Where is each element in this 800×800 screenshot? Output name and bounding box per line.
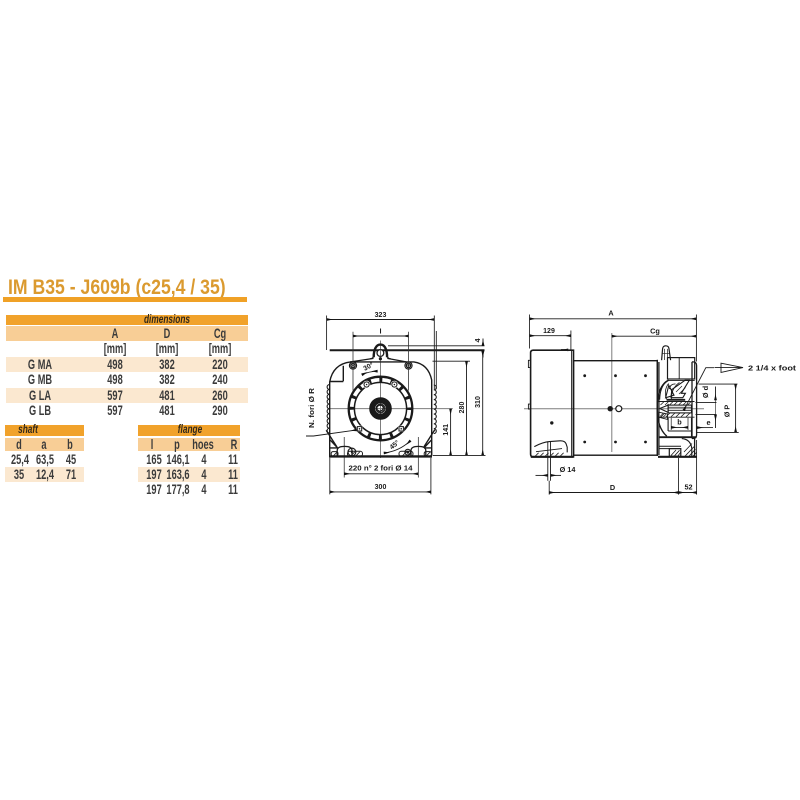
svg-text:A: A xyxy=(608,308,614,317)
svg-text:300: 300 xyxy=(375,484,387,491)
svg-text:e: e xyxy=(706,418,710,427)
svg-text:b: b xyxy=(677,418,682,427)
svg-text:D: D xyxy=(610,483,615,492)
svg-text:N. fori Ø R: N. fori Ø R xyxy=(307,387,316,428)
svg-text:45°: 45° xyxy=(388,438,401,451)
svg-text:I: I xyxy=(379,326,381,335)
svg-text:Ø 14: Ø 14 xyxy=(560,465,577,474)
svg-text:52: 52 xyxy=(684,483,692,492)
svg-text:4: 4 xyxy=(473,338,482,343)
svg-text:Ø d: Ø d xyxy=(701,386,710,398)
svg-text:Cg: Cg xyxy=(650,327,660,336)
svg-text:2 1/4 x foot: 2 1/4 x foot xyxy=(748,364,797,373)
svg-text:Ø P: Ø P xyxy=(722,405,731,418)
svg-text:280: 280 xyxy=(459,402,466,414)
svg-text:323: 323 xyxy=(375,312,387,319)
svg-text:220 n° 2 fori Ø 14: 220 n° 2 fori Ø 14 xyxy=(349,464,414,473)
svg-text:141: 141 xyxy=(443,424,450,436)
svg-text:310: 310 xyxy=(475,396,482,408)
svg-text:129: 129 xyxy=(543,328,555,335)
